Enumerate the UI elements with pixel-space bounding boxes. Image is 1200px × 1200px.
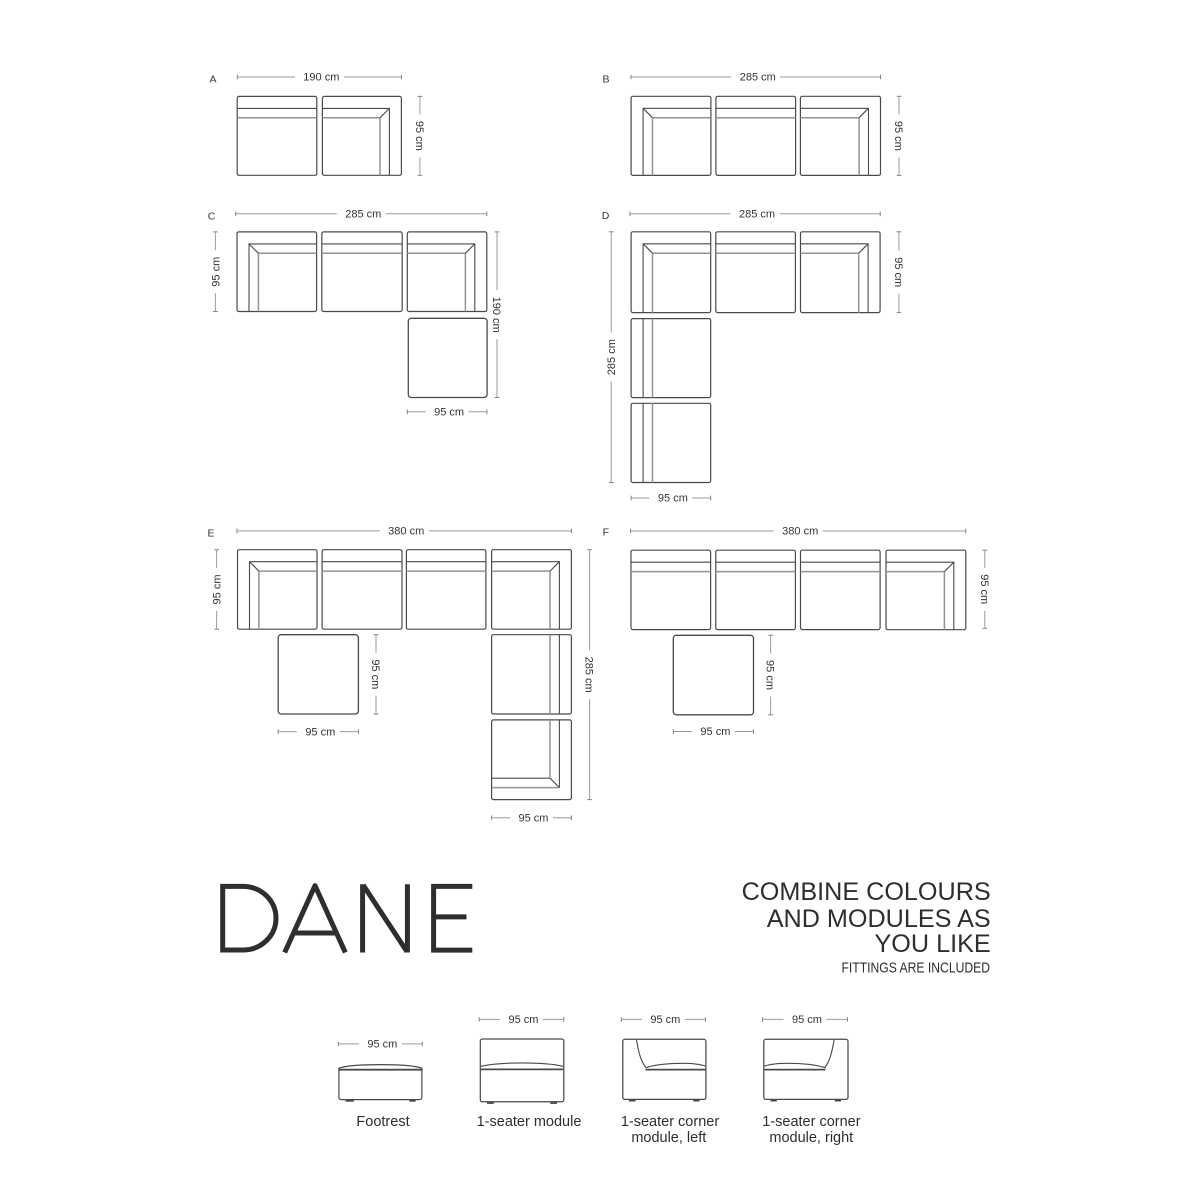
svg-text:module, right: module, right bbox=[769, 1130, 853, 1146]
svg-text:D: D bbox=[602, 210, 610, 222]
svg-text:95 cm: 95 cm bbox=[305, 726, 335, 738]
svg-text:190 cm: 190 cm bbox=[303, 72, 339, 84]
svg-text:B: B bbox=[602, 74, 609, 86]
svg-text:C: C bbox=[208, 211, 216, 223]
svg-text:95 cm: 95 cm bbox=[892, 257, 904, 287]
svg-text:285 cm: 285 cm bbox=[583, 657, 595, 693]
svg-text:95 cm: 95 cm bbox=[212, 574, 224, 604]
svg-text:95 cm: 95 cm bbox=[764, 660, 776, 690]
svg-text:COMBINE COLOURS: COMBINE COLOURS bbox=[742, 878, 991, 906]
svg-text:F: F bbox=[603, 527, 609, 539]
svg-text:95 cm: 95 cm bbox=[434, 407, 464, 419]
svg-text:95 cm: 95 cm bbox=[658, 493, 688, 505]
svg-text:285 cm: 285 cm bbox=[739, 209, 775, 221]
svg-text:95 cm: 95 cm bbox=[367, 1039, 397, 1051]
svg-text:A: A bbox=[209, 74, 216, 86]
svg-text:95 cm: 95 cm bbox=[519, 812, 549, 824]
svg-text:1-seater module: 1-seater module bbox=[477, 1114, 582, 1130]
svg-text:95 cm: 95 cm bbox=[978, 574, 990, 604]
svg-text:AND MODULES AS: AND MODULES AS bbox=[767, 905, 991, 933]
svg-text:285 cm: 285 cm bbox=[740, 72, 776, 84]
svg-text:95 cm: 95 cm bbox=[700, 726, 730, 738]
svg-text:1-seater corner: 1-seater corner bbox=[621, 1114, 719, 1130]
svg-text:285 cm: 285 cm bbox=[345, 209, 381, 221]
svg-text:95 cm: 95 cm bbox=[509, 1014, 539, 1026]
svg-text:95 cm: 95 cm bbox=[792, 1014, 822, 1026]
svg-text:95 cm: 95 cm bbox=[650, 1014, 680, 1026]
svg-text:1-seater corner: 1-seater corner bbox=[762, 1114, 860, 1130]
svg-text:95 cm: 95 cm bbox=[210, 257, 222, 287]
svg-text:285 cm: 285 cm bbox=[606, 339, 618, 375]
svg-text:E: E bbox=[207, 528, 214, 540]
svg-text:95 cm: 95 cm bbox=[413, 121, 425, 151]
svg-text:Footrest: Footrest bbox=[356, 1114, 409, 1130]
svg-text:95 cm: 95 cm bbox=[369, 659, 381, 689]
svg-text:module, left: module, left bbox=[631, 1130, 706, 1146]
svg-text:380 cm: 380 cm bbox=[388, 526, 424, 538]
svg-text:YOU LIKE: YOU LIKE bbox=[875, 930, 991, 958]
svg-text:190 cm: 190 cm bbox=[490, 297, 502, 333]
svg-text:FITTINGS ARE INCLUDED: FITTINGS ARE INCLUDED bbox=[842, 959, 991, 976]
svg-text:95 cm: 95 cm bbox=[892, 121, 904, 151]
svg-text:380 cm: 380 cm bbox=[782, 526, 818, 538]
